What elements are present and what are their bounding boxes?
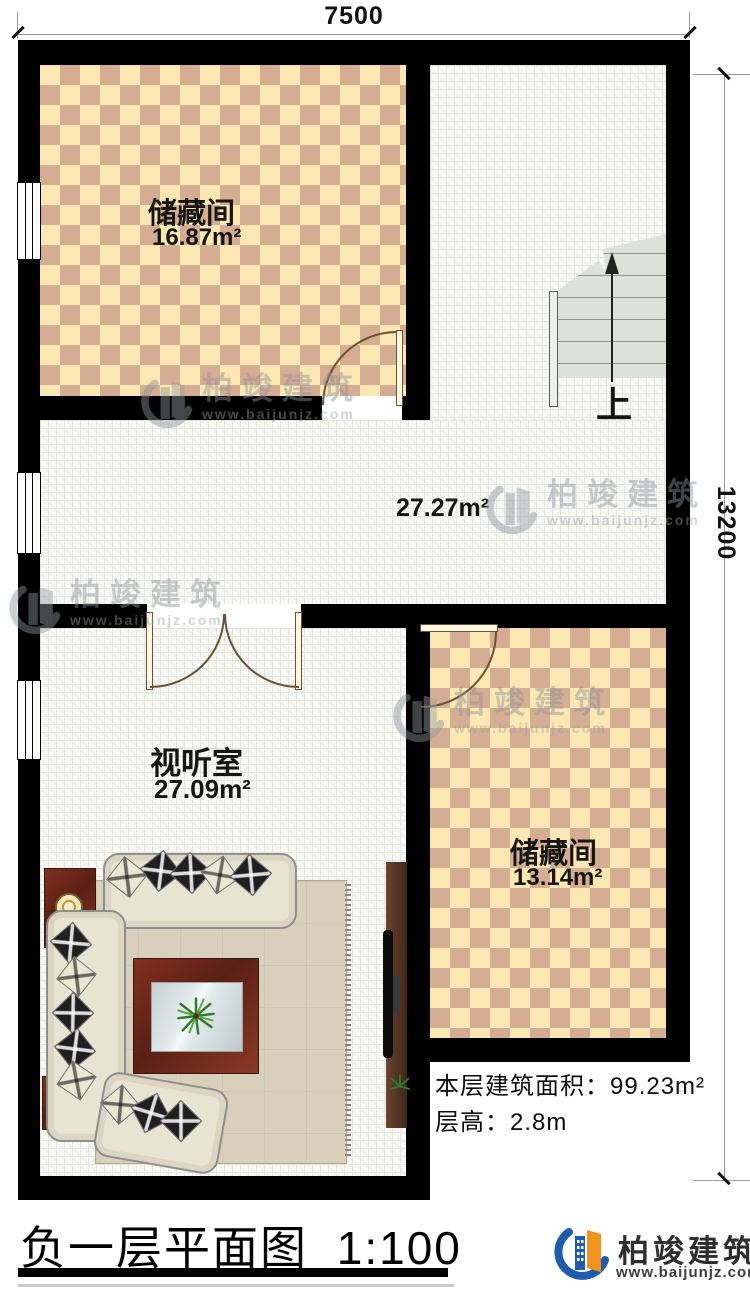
window xyxy=(17,472,41,554)
floor-area-value: 99.23m² xyxy=(610,1073,705,1100)
stair-stringer xyxy=(549,291,558,407)
room-area-av-room: 27.09m² xyxy=(154,774,251,805)
stairs-up-label: 上 xyxy=(596,376,632,428)
wall-top xyxy=(18,40,690,65)
wall-right xyxy=(666,40,690,1062)
plant-icon xyxy=(387,1068,413,1102)
floor-area-label: 本层建筑面积： xyxy=(435,1073,610,1100)
extension-line xyxy=(693,74,750,75)
brand-url: www.baijunjz.com xyxy=(616,1264,750,1281)
window xyxy=(17,182,41,260)
title-underline-light xyxy=(18,1284,454,1287)
title-text: 负一层平面图 xyxy=(20,1222,308,1274)
wall-avroom-bottom xyxy=(18,1176,430,1200)
floor-height-note: 层高：2.8m xyxy=(435,1102,567,1137)
floor-area-note: 本层建筑面积：99.23m² xyxy=(435,1066,705,1101)
wall-storage1-right xyxy=(406,40,430,420)
wall-storage1-bottom xyxy=(18,396,322,420)
dimension-right-label: 13200 xyxy=(711,458,740,588)
title-scale: 1:100 xyxy=(337,1222,462,1274)
door-leaf-storage2 xyxy=(420,624,498,632)
floor-height-value: 2.8m xyxy=(510,1109,567,1136)
stairs-arrow-head xyxy=(605,252,619,274)
floor-height-label: 层高： xyxy=(435,1109,510,1136)
open-area-floor xyxy=(40,420,666,604)
tv xyxy=(383,930,393,1058)
dimension-line-right xyxy=(724,75,725,1180)
room-area-storage1: 16.87m² xyxy=(152,224,241,252)
title-underline xyxy=(18,1268,448,1277)
dimension-tick xyxy=(683,26,696,39)
rug-fringe xyxy=(345,884,351,1158)
extension-line xyxy=(693,1180,750,1181)
room-area-hall: 27.27m² xyxy=(396,494,489,523)
stairs-direction-arrow xyxy=(611,272,613,382)
tv-mount xyxy=(393,975,400,1013)
plant-icon xyxy=(174,994,218,1038)
dimension-line-top xyxy=(18,34,690,35)
room-area-storage2: 13.14m² xyxy=(513,864,602,892)
brand-logo-icon xyxy=(553,1220,613,1286)
window xyxy=(17,680,41,760)
dimension-top-label: 7500 xyxy=(254,2,454,31)
door-leaf-storage1 xyxy=(396,330,403,406)
wall-storage1-bottom-jamb xyxy=(402,396,430,420)
wall-storage2-bottom xyxy=(406,1038,690,1062)
wall-mid-left xyxy=(18,604,147,628)
floorplan-page: 7500 13200 上 xyxy=(0,0,750,1297)
dimension-tick xyxy=(11,26,24,39)
